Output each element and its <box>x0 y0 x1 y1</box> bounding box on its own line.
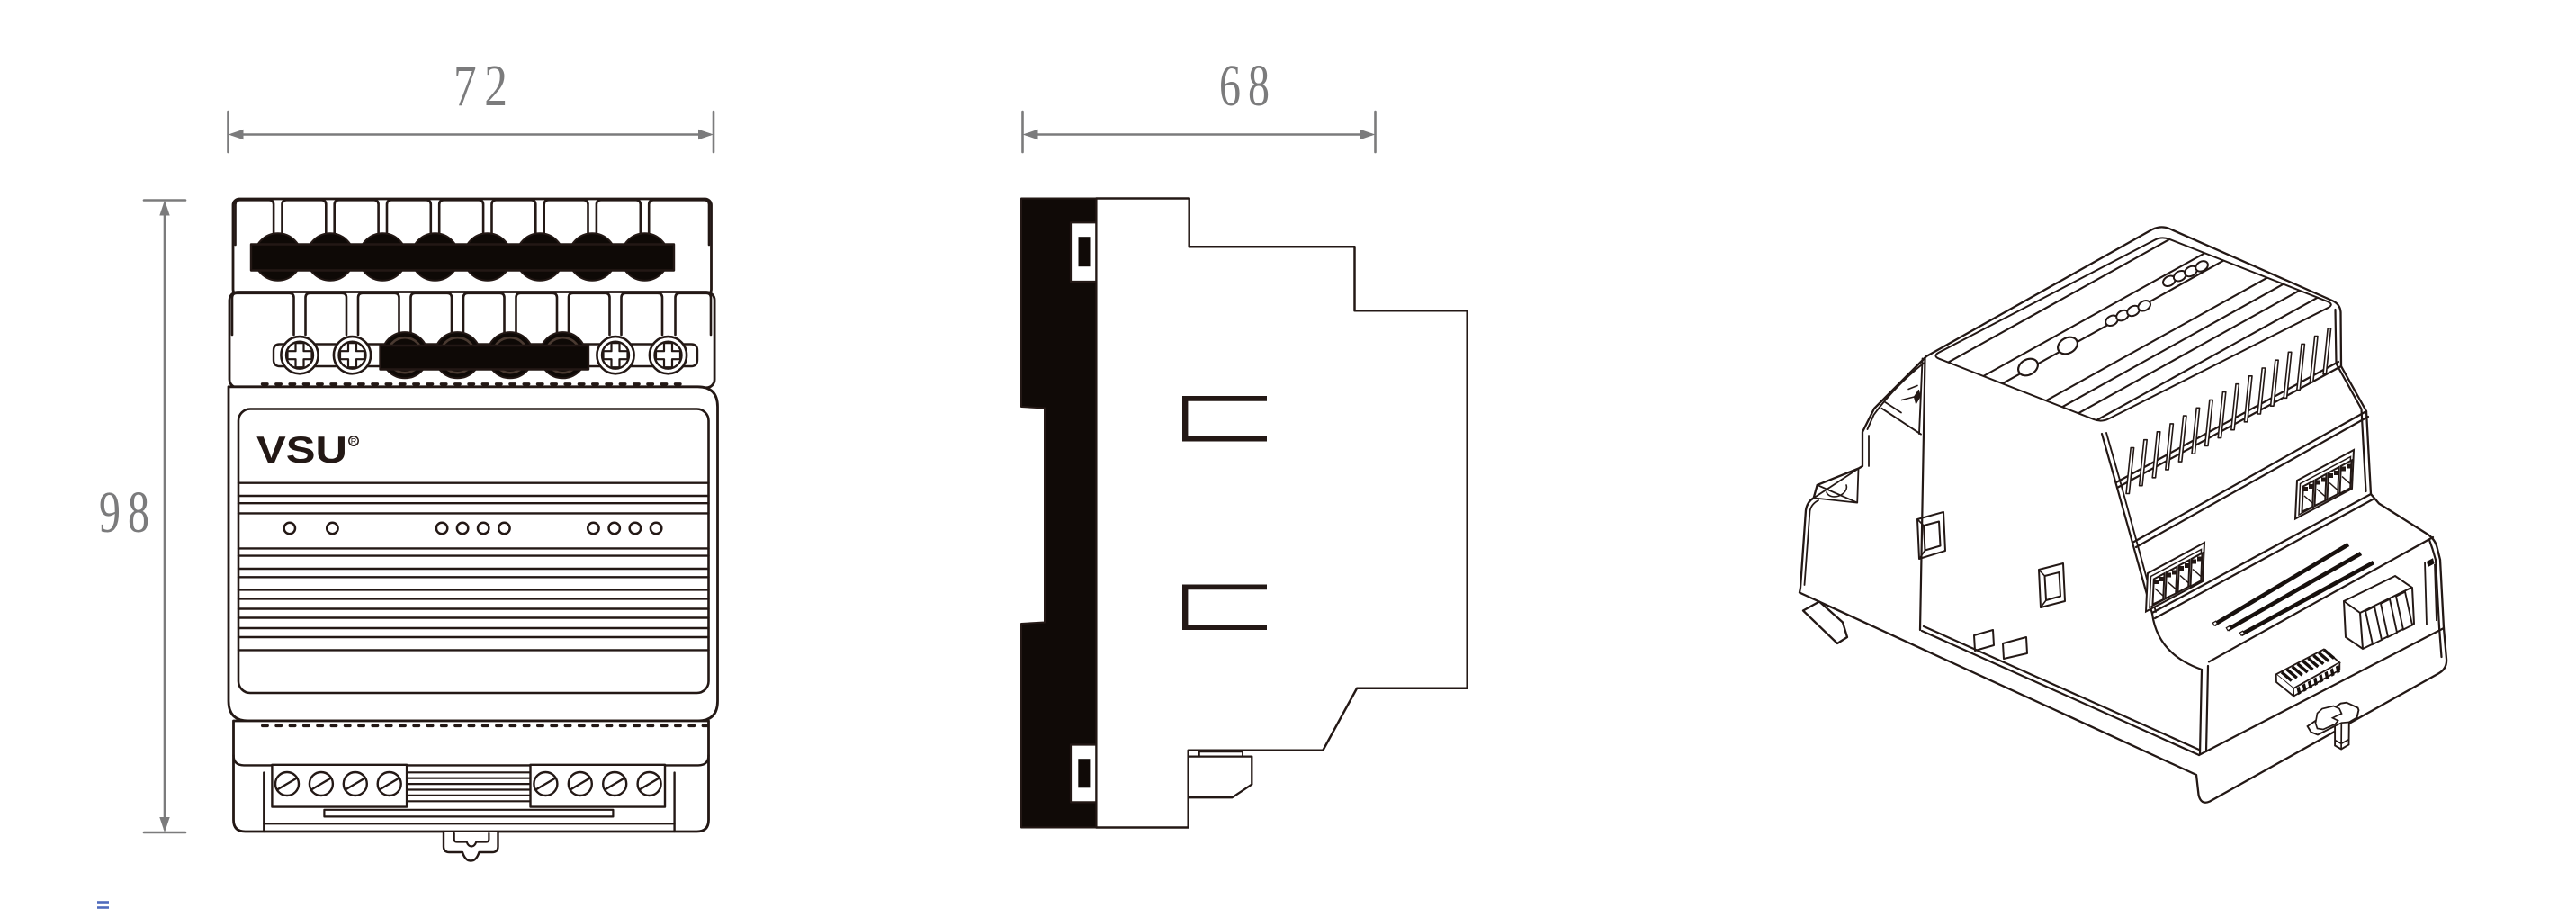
svg-text:6 8: 6 8 <box>1219 53 1270 119</box>
svg-text:9 8: 9 8 <box>99 480 149 545</box>
svg-text:VSU: VSU <box>256 428 347 471</box>
svg-text:R: R <box>351 437 357 446</box>
svg-text:7 2: 7 2 <box>453 53 507 119</box>
